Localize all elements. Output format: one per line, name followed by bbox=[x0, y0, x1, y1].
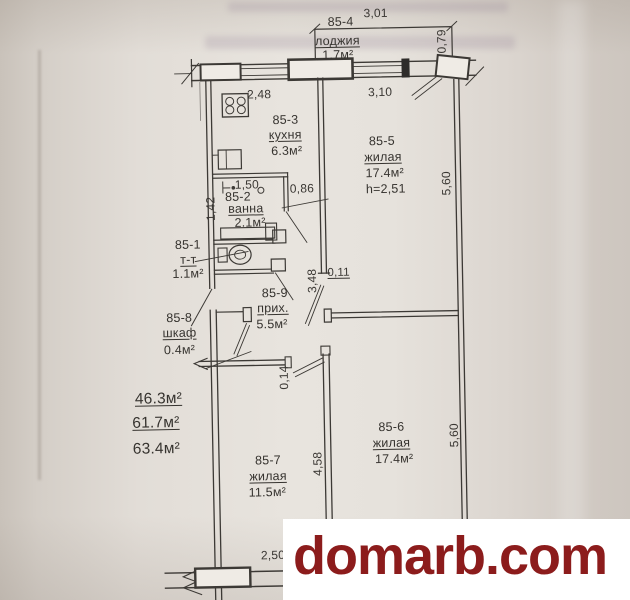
dim-room7-depth: 4,58 bbox=[311, 448, 325, 480]
window-top-left bbox=[200, 64, 240, 81]
stove bbox=[222, 94, 248, 117]
room-85-4-area: 1.7м² bbox=[322, 49, 353, 63]
balcony-door-swing bbox=[412, 75, 442, 100]
dim-hall-wall: 0,86 bbox=[290, 182, 314, 196]
dim-window-left: 2,48 bbox=[247, 88, 271, 102]
room-85-1-name: т-т bbox=[180, 254, 196, 268]
dim-kitchen-wall: 3,48 bbox=[306, 266, 320, 296]
room-85-3-name: кухня bbox=[269, 129, 302, 143]
closet-door-swing bbox=[233, 324, 250, 356]
right-wall bbox=[454, 79, 469, 582]
dim-right-wall-upper: 5,60 bbox=[440, 166, 454, 200]
kitchen-sink bbox=[212, 150, 241, 170]
dim-bottom-window: 2,50 bbox=[261, 549, 285, 563]
room-85-5-area: 17.4м² bbox=[365, 167, 404, 181]
dim-bath-depth: 1,42 bbox=[204, 194, 218, 224]
window-top-right bbox=[436, 55, 470, 79]
closet-walls bbox=[205, 308, 252, 369]
toilet-tank bbox=[218, 248, 227, 262]
wall-pier bbox=[401, 58, 409, 77]
room-85-3-id: 85-3 bbox=[272, 114, 298, 128]
room-85-8-area: 0.4м² bbox=[164, 344, 195, 358]
dim-lodge-depth: 0,79 bbox=[435, 24, 449, 58]
room-85-9-area: 5.5м² bbox=[256, 318, 287, 332]
room-85-5-id: 85-5 bbox=[369, 135, 395, 149]
room-85-6-id: 85-6 bbox=[378, 421, 404, 435]
room-85-6-area: 17.4м² bbox=[375, 452, 414, 466]
room-85-3-area: 6.3м² bbox=[271, 145, 302, 159]
total-subtotal: 61.7м² bbox=[132, 414, 180, 432]
dim-line-0-86 bbox=[282, 199, 328, 208]
dim-pier-top: 0,11 bbox=[327, 267, 350, 280]
entry-door-swing bbox=[191, 289, 213, 325]
room-85-9-id: 85-9 bbox=[262, 287, 288, 301]
dim-pier-bottom: 0,14 bbox=[278, 362, 292, 392]
room7-door-swing bbox=[293, 358, 324, 377]
window-bottom bbox=[195, 568, 250, 588]
watermark-text: domarb.com bbox=[293, 529, 607, 583]
room-85-8-id: 85-8 bbox=[166, 312, 192, 326]
room-85-4-id: 85-4 bbox=[328, 15, 354, 29]
bathroom-door-swing bbox=[286, 211, 307, 242]
dim-lodge-width: 3,01 bbox=[363, 7, 387, 21]
room5-room6-wall bbox=[324, 307, 458, 323]
room-85-5-name: жилая bbox=[364, 151, 402, 165]
room-85-9-name: прих. bbox=[257, 302, 289, 316]
room-85-7-area: 11.5м² bbox=[249, 486, 287, 500]
watermark-banner: domarb.com bbox=[283, 519, 630, 600]
wall-break-mark bbox=[194, 358, 207, 369]
hall-room7-wall bbox=[194, 356, 324, 378]
room-85-8-name: шкаф bbox=[162, 327, 196, 341]
toilet-leader-line bbox=[195, 252, 248, 262]
total-area: 63.4м² bbox=[133, 440, 181, 458]
scanned-floorplan-photo: 3,01 85-4 лоджия 1.7м² 0,79 2,48 3,10 85… bbox=[0, 0, 630, 600]
room-85-5-height: h=2,51 bbox=[366, 183, 406, 198]
dim-window-right: 3,10 bbox=[368, 86, 392, 100]
floorplan-drawing: 3,01 85-4 лоджия 1.7м² 0,79 2,48 3,10 85… bbox=[0, 0, 630, 600]
floorplan-linework bbox=[0, 0, 630, 600]
room-85-7-id: 85-7 bbox=[255, 454, 281, 468]
room-85-6-name: жилая bbox=[373, 436, 411, 450]
room-85-7-name: жилая bbox=[249, 470, 287, 484]
dim-right-wall-lower: 5,60 bbox=[448, 419, 462, 451]
room-85-2-area: 2.1м² bbox=[234, 216, 265, 230]
room-85-1-area: 1.1м² bbox=[172, 267, 203, 281]
room-85-1-id: 85-1 bbox=[175, 238, 201, 252]
total-living-area: 46.3м² bbox=[135, 390, 183, 408]
